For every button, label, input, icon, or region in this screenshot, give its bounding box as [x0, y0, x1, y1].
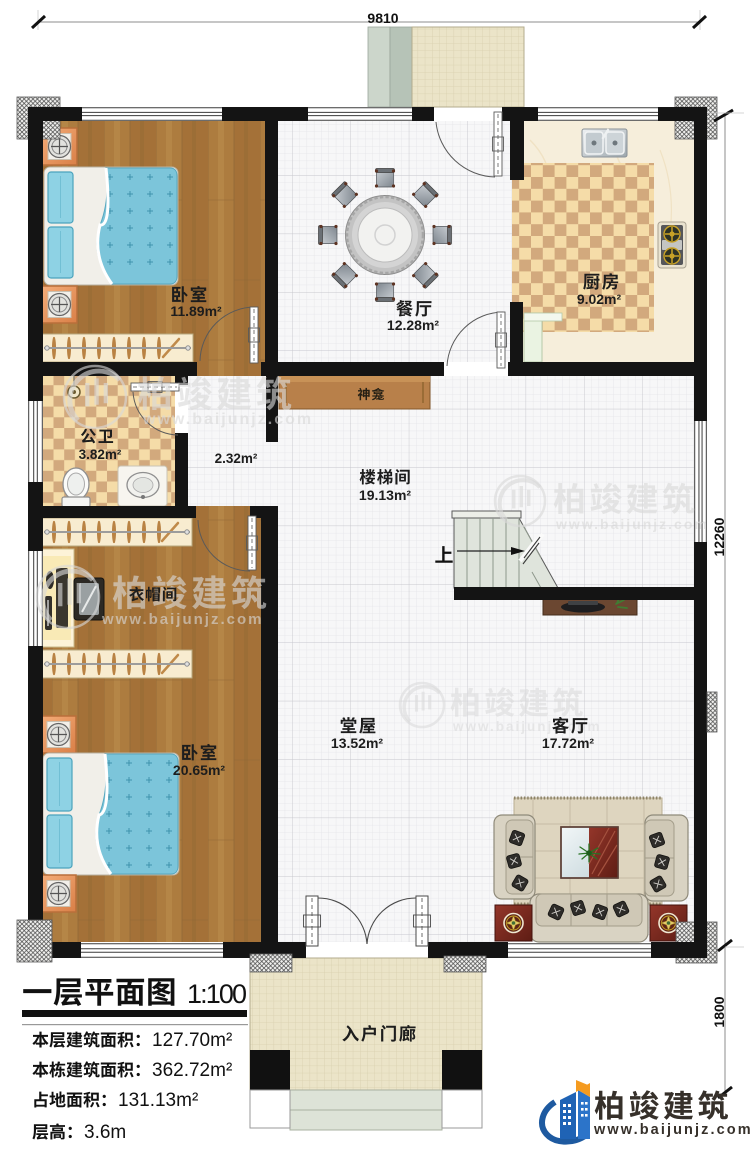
svg-text:17.72m²: 17.72m² — [542, 735, 594, 751]
svg-text:131.13m²: 131.13m² — [118, 1090, 198, 1111]
svg-text:127.70m²: 127.70m² — [152, 1030, 232, 1051]
svg-text:www.baijunjz.com: www.baijunjz.com — [555, 516, 709, 532]
svg-text:www.baijunjz.com: www.baijunjz.com — [101, 611, 263, 628]
svg-text:1800: 1800 — [711, 996, 727, 1027]
svg-text:www.baijunjz.com: www.baijunjz.com — [593, 1122, 750, 1138]
svg-text:20.65m²: 20.65m² — [173, 762, 225, 778]
svg-text:www.baijunjz.com: www.baijunjz.com — [142, 411, 313, 428]
svg-text:9810: 9810 — [367, 10, 398, 26]
svg-text:12.28m²: 12.28m² — [387, 317, 439, 333]
svg-text:3.82m²: 3.82m² — [79, 447, 122, 462]
svg-text:11.89m²: 11.89m² — [170, 303, 222, 319]
svg-text:1:100: 1:100 — [187, 979, 247, 1009]
svg-text:2.32m²: 2.32m² — [215, 451, 258, 466]
svg-text:12260: 12260 — [711, 517, 727, 556]
svg-text:19.13m²: 19.13m² — [359, 487, 411, 503]
svg-text:9.02m²: 9.02m² — [577, 291, 622, 307]
svg-text:362.72m²: 362.72m² — [152, 1060, 232, 1081]
svg-text:13.52m²: 13.52m² — [331, 735, 383, 751]
svg-text:3.6m: 3.6m — [84, 1122, 126, 1143]
